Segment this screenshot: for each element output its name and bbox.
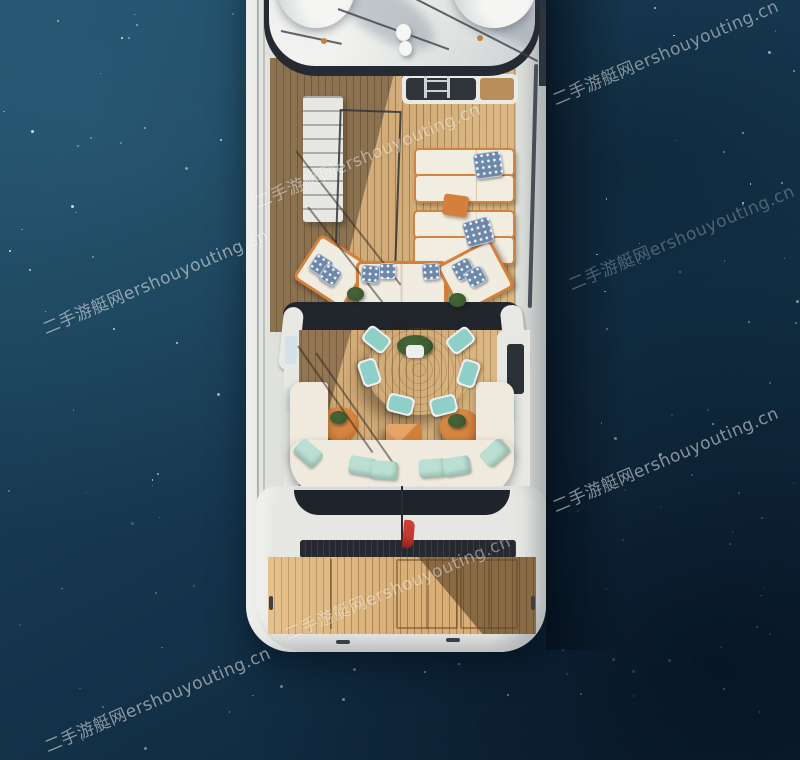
potted-plant xyxy=(347,287,364,301)
turnbuckle xyxy=(321,38,327,44)
plank-seam xyxy=(330,559,332,629)
yacht xyxy=(0,0,800,760)
lounger-side-table xyxy=(442,193,470,217)
roof-fitting xyxy=(399,41,412,56)
starboard-hull-shadow xyxy=(539,0,546,86)
mint-pillow xyxy=(370,460,398,480)
mooring-cleat xyxy=(269,596,273,610)
turnbuckle xyxy=(477,35,483,41)
patterned-pillow xyxy=(421,262,440,281)
aqua-seat-cushion xyxy=(431,395,457,415)
patterned-pillow xyxy=(360,264,380,284)
windscreen xyxy=(402,74,518,104)
aqua-seat-cushion xyxy=(388,394,414,414)
patterned-pillow xyxy=(379,263,396,279)
roof-fitting xyxy=(396,24,411,41)
mooring-cleat xyxy=(336,640,350,644)
port-rail-seam xyxy=(263,0,265,505)
potted-plant xyxy=(449,293,466,307)
deck-locker xyxy=(285,336,297,364)
aerial-yacht-photo: 二手游艇网ershouyouting.cn 二手游艇网ershouyouting… xyxy=(0,0,800,760)
potted-plant xyxy=(330,411,347,424)
transom-door xyxy=(396,559,458,629)
patterned-pillow xyxy=(472,150,503,180)
mooring-cleat xyxy=(446,638,460,642)
transom-door xyxy=(460,559,518,629)
mooring-cleat xyxy=(531,596,535,610)
potted-plant xyxy=(448,414,466,428)
windscreen-console xyxy=(480,78,514,100)
swim-platform xyxy=(268,557,536,634)
port-rail-seam xyxy=(257,0,259,510)
centerpiece-pot xyxy=(406,345,424,358)
